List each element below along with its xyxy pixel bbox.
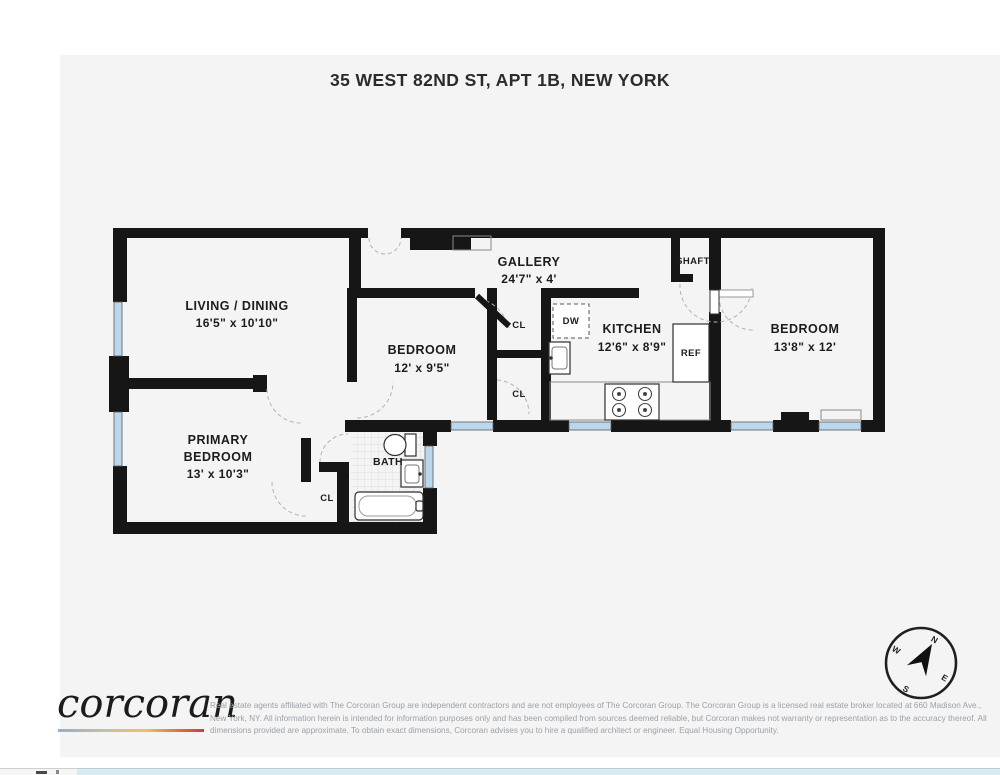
logo-gradient-bar [58, 729, 204, 732]
page-title: 35 WEST 82ND ST, APT 1B, NEW YORK [0, 70, 1000, 91]
entry-door-arc [369, 238, 401, 254]
bath-label: BATH [373, 456, 403, 468]
background-window-edge[interactable] [0, 768, 1000, 775]
primary-closet-door-arc [272, 482, 306, 516]
background-window-bar[interactable] [77, 768, 1000, 775]
window-living-west [114, 302, 122, 356]
shaft-label: SHAFT [676, 256, 710, 267]
window-bedroom-south [819, 422, 861, 430]
bedroom-mid-door-arc [357, 382, 393, 418]
tab-mark [56, 770, 59, 774]
toilet-tank [405, 434, 416, 456]
window-south-1 [451, 422, 493, 430]
window-primary-west [114, 412, 122, 466]
window-south-2 [731, 422, 773, 430]
legal-disclaimer: Real estate agents affiliated with The C… [210, 700, 992, 738]
background-window-tab[interactable] [0, 768, 77, 775]
living-room-dims: 16'5" x 10'10" [196, 316, 279, 330]
window-bath-east [425, 446, 433, 488]
closet-label-primary: CL [320, 493, 333, 504]
stove [605, 384, 659, 420]
living-room-label: LIVING / DINING [185, 299, 288, 313]
tub-faucet [416, 501, 423, 511]
bedroom-mid-label: BEDROOM [388, 343, 457, 357]
window-kitchen-south [569, 422, 611, 430]
bedroom-right-label: BEDROOM [771, 322, 840, 336]
walls [109, 228, 885, 534]
closet-label-top: CL [512, 320, 525, 331]
primary-door-arc [267, 389, 301, 423]
dishwasher-label: DW [563, 316, 580, 327]
primary-bedroom-dims: 13' x 10'3" [187, 467, 250, 481]
primary-bedroom-label-2: BEDROOM [184, 450, 253, 464]
bedroom-right-door-leaf [719, 290, 753, 297]
gallery-label: GALLERY [498, 255, 561, 269]
closet-label-bottom: CL [512, 389, 525, 400]
kitchen-dims: 12'6" x 8'9" [598, 340, 667, 354]
bedroom-mid-dims: 12' x 9'5" [394, 361, 449, 375]
compass-icon: N E S W [878, 620, 964, 706]
kitchen-label: KITCHEN [602, 322, 661, 336]
bedroom-right-dims: 13'8" x 12' [774, 340, 837, 354]
tab-favicon [36, 771, 47, 774]
bath-door-arc [320, 434, 348, 462]
kitchen-door-leaf [710, 290, 719, 314]
bedroom-right-door-arc [719, 296, 753, 330]
primary-bedroom-label-1: PRIMARY [188, 433, 249, 447]
refrigerator-label: REF [681, 348, 701, 359]
floorplan-drawing: LIVING / DINING 16'5" x 10'10" PRIMARY B… [105, 220, 895, 540]
toilet-bowl [384, 435, 406, 456]
radiator [821, 410, 861, 420]
gallery-dims: 24'7" x 4' [501, 272, 556, 286]
